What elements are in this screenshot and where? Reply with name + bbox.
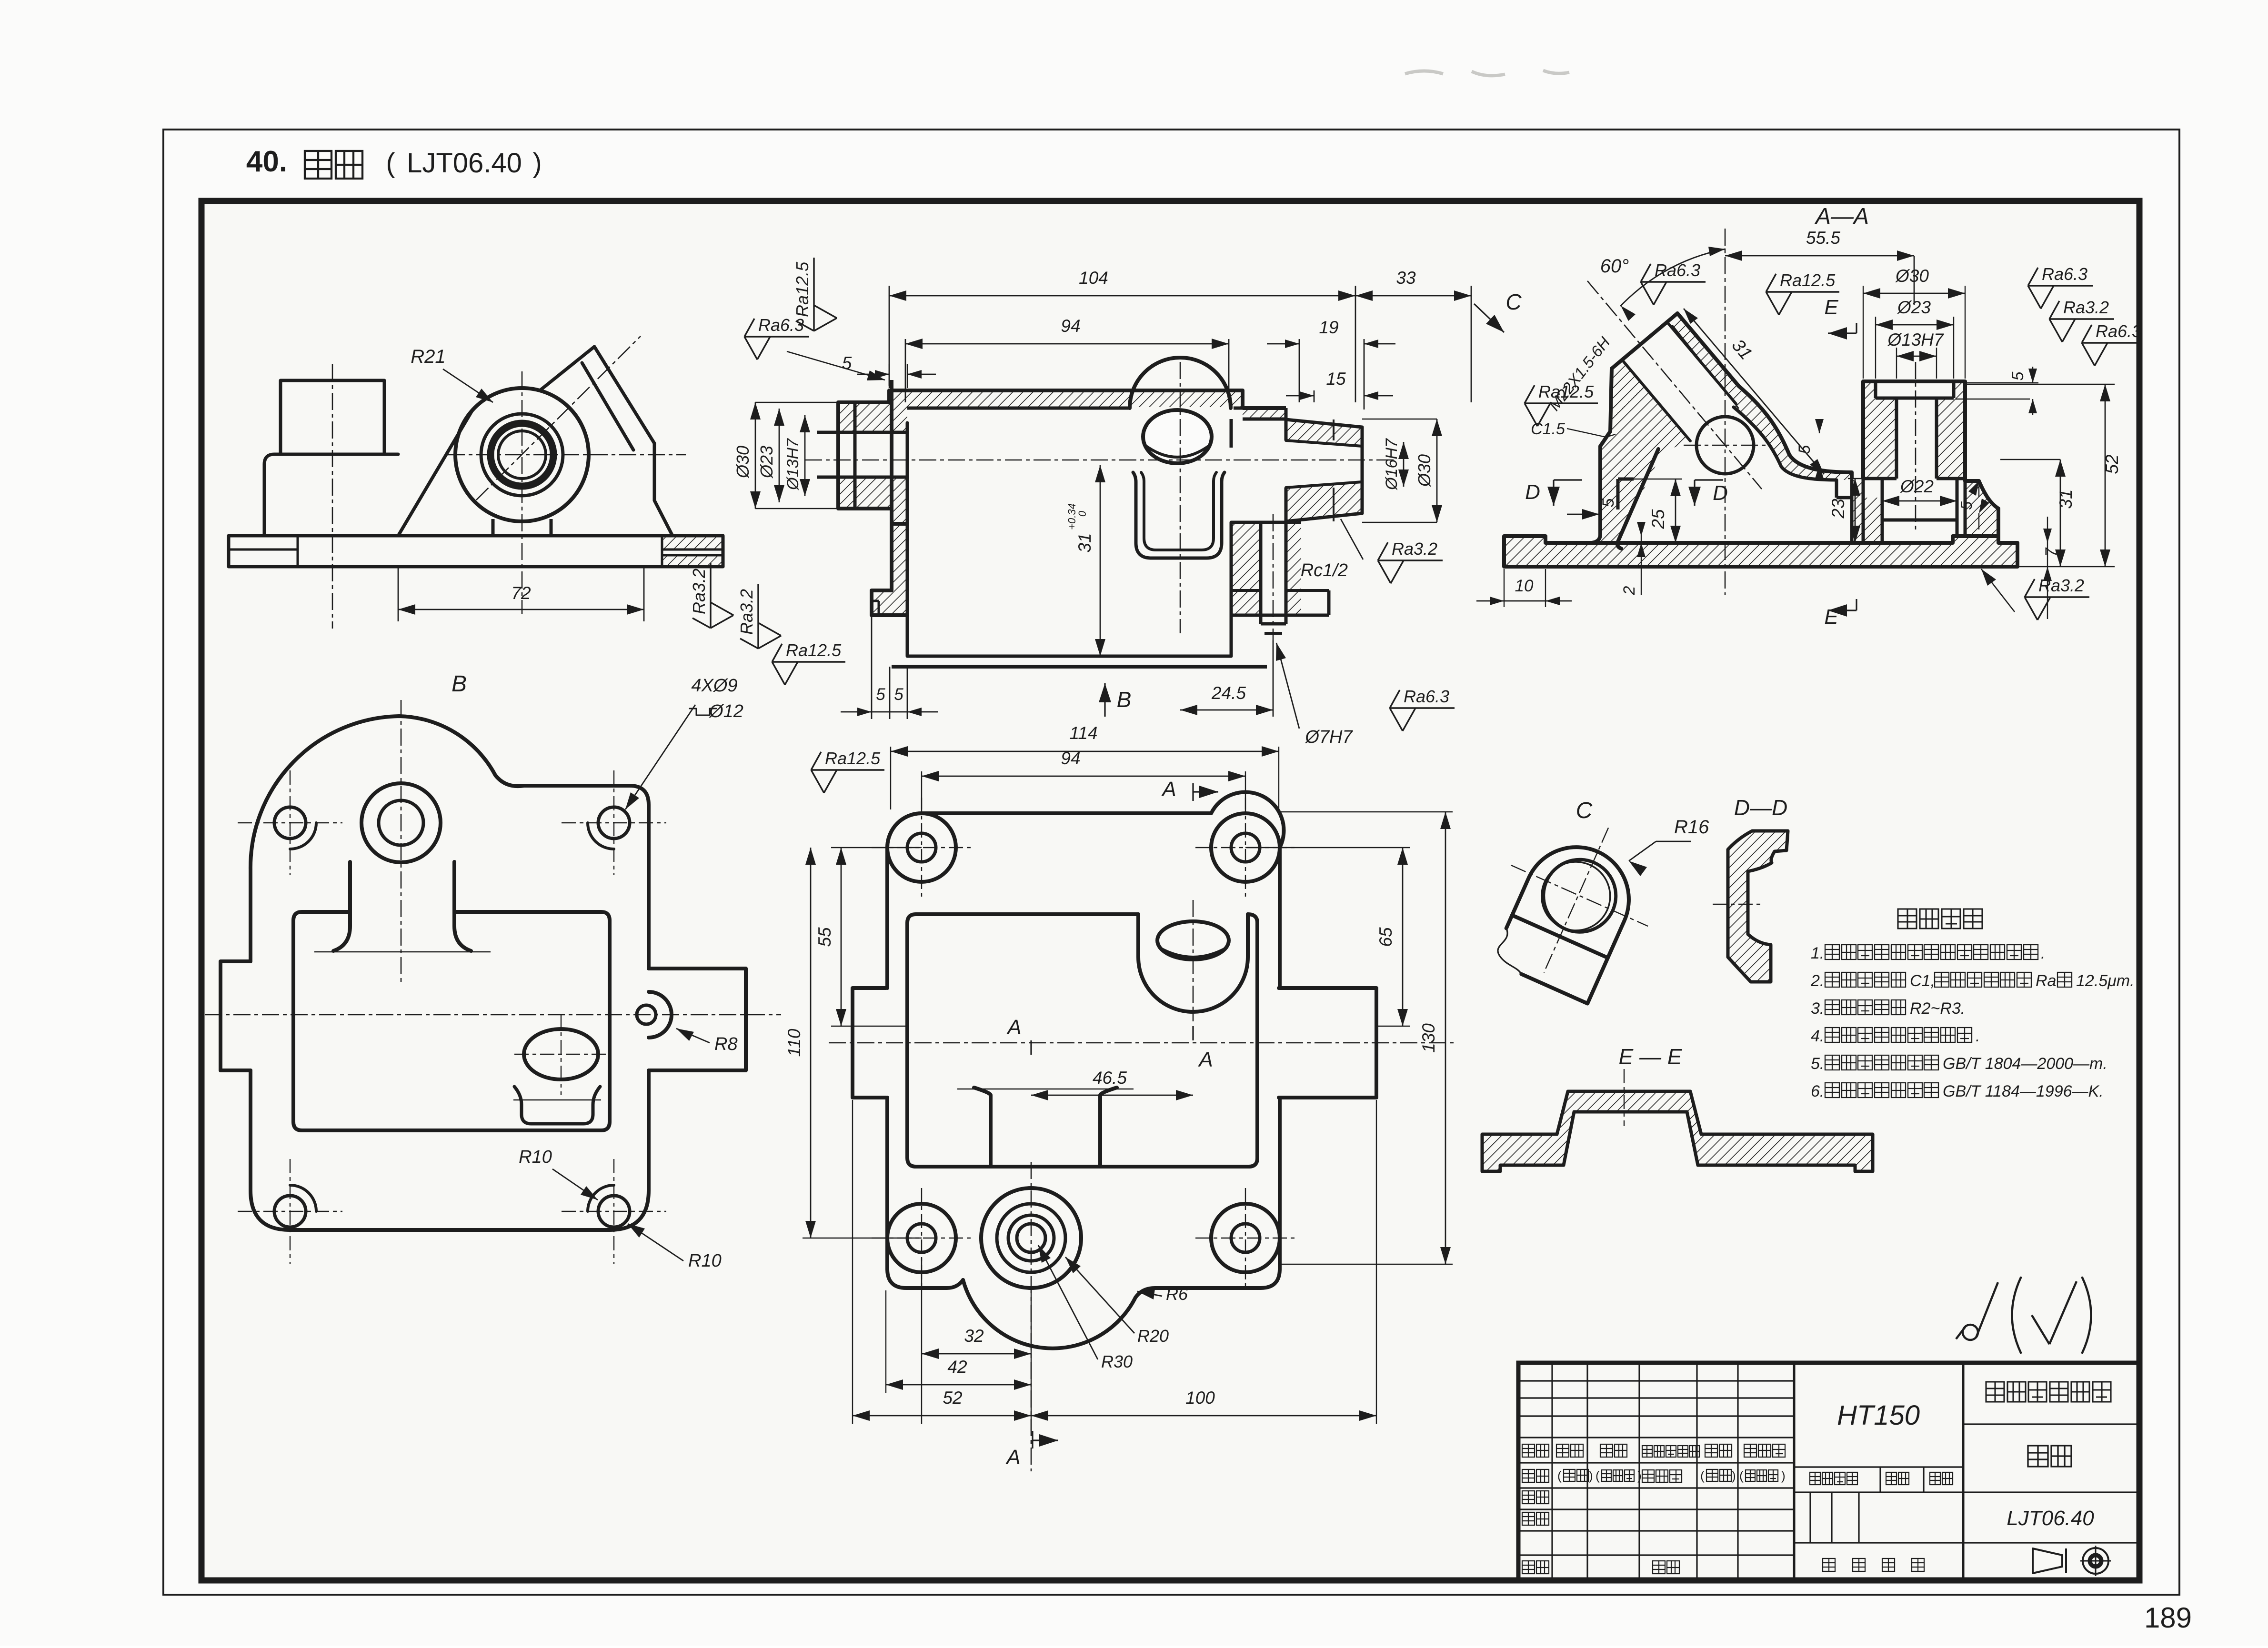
svg-text:Ø30: Ø30 [1415, 454, 1434, 487]
svg-text:Ra: Ra [2036, 972, 2056, 990]
svg-text:C: C [1576, 798, 1593, 823]
svg-text:130: 130 [1419, 1023, 1438, 1053]
svg-text:110: 110 [784, 1029, 804, 1057]
svg-text:Ø23: Ø23 [757, 446, 776, 479]
svg-text:(: ( [386, 148, 395, 179]
svg-text:94: 94 [1061, 316, 1080, 336]
svg-text:D—D: D—D [1734, 795, 1787, 820]
svg-text:3.: 3. [1811, 999, 1824, 1018]
svg-text:R16: R16 [1674, 817, 1709, 838]
svg-text:5: 5 [1796, 445, 1814, 454]
svg-text:Ø13H7: Ø13H7 [1887, 330, 1944, 350]
svg-text:Ra12.5: Ra12.5 [1780, 270, 1836, 290]
svg-text:R8: R8 [714, 1034, 738, 1054]
svg-text:25: 25 [1648, 509, 1668, 529]
svg-text:Ø23: Ø23 [1897, 298, 1931, 317]
svg-text:2.: 2. [1810, 972, 1824, 990]
svg-text:E: E [1824, 296, 1838, 319]
svg-text:(: ( [1557, 1468, 1562, 1483]
svg-text:A: A [1197, 1048, 1213, 1071]
svg-text:1.: 1. [1811, 944, 1824, 962]
svg-text:72: 72 [511, 583, 531, 603]
svg-text:4XØ9: 4XØ9 [691, 676, 737, 696]
svg-text:C: C [1505, 290, 1522, 314]
svg-text:60°: 60° [1600, 256, 1629, 277]
svg-text:R10: R10 [688, 1251, 722, 1271]
svg-text:23: 23 [1828, 499, 1848, 519]
svg-text:5: 5 [894, 685, 903, 704]
svg-text:52: 52 [943, 1388, 963, 1408]
svg-text:2: 2 [1620, 586, 1638, 595]
svg-text:Ra6.3: Ra6.3 [758, 315, 804, 335]
svg-text:31: 31 [2056, 489, 2076, 509]
svg-text:Ra6.3: Ra6.3 [1655, 260, 1700, 280]
svg-text:): ) [1732, 1468, 1736, 1483]
svg-text:10: 10 [1515, 577, 1534, 595]
svg-text:Rc1/2: Rc1/2 [1301, 560, 1348, 580]
svg-text:114: 114 [1070, 723, 1098, 743]
svg-text:42: 42 [947, 1357, 967, 1377]
svg-text:65: 65 [1376, 927, 1395, 947]
svg-text:0: 0 [1076, 510, 1088, 517]
svg-text:E — E: E — E [1619, 1044, 1683, 1069]
svg-text:55.5: 55.5 [1806, 228, 1840, 248]
svg-text:C1,: C1, [1910, 972, 1935, 990]
svg-text:R10: R10 [519, 1147, 552, 1167]
svg-text:Ra3.2: Ra3.2 [689, 569, 709, 614]
svg-text:.: . [2041, 944, 2045, 962]
svg-text:Ra3.2: Ra3.2 [737, 589, 756, 635]
svg-text:52: 52 [2102, 454, 2122, 474]
svg-text:B: B [1117, 687, 1132, 712]
svg-text:): ) [532, 148, 542, 179]
svg-text:5: 5 [1599, 498, 1617, 507]
svg-text:R21: R21 [411, 346, 445, 367]
svg-text:12.5μm.: 12.5μm. [2076, 972, 2135, 990]
svg-text:.: . [1976, 1027, 1980, 1045]
svg-text:15: 15 [1326, 369, 1346, 389]
svg-text:D: D [1525, 480, 1540, 504]
svg-text:Ø30: Ø30 [1895, 266, 1929, 286]
svg-text:5: 5 [876, 685, 885, 704]
svg-text:Ra6.3: Ra6.3 [2096, 321, 2141, 341]
svg-text:5.: 5. [1811, 1055, 1824, 1073]
svg-text:Ra12.5: Ra12.5 [1538, 382, 1594, 401]
svg-text:Ra6.3: Ra6.3 [2042, 264, 2087, 284]
svg-text:(: ( [1596, 1468, 1600, 1483]
svg-text:GB/T 1804—2000—m.: GB/T 1804—2000—m. [1943, 1055, 2107, 1073]
svg-text:5: 5 [2009, 371, 2027, 380]
svg-text:GB/T 1184—1996—K.: GB/T 1184—1996—K. [1943, 1082, 2104, 1100]
svg-text:33: 33 [1396, 268, 1416, 288]
svg-text:32: 32 [964, 1326, 984, 1346]
svg-text:Ra3.2: Ra3.2 [2063, 298, 2109, 317]
svg-text:6.: 6. [1811, 1082, 1824, 1100]
svg-text:189: 189 [2144, 1602, 2192, 1634]
svg-text:24.5: 24.5 [1211, 683, 1246, 703]
svg-text:): ) [1637, 1468, 1642, 1483]
svg-text:R20: R20 [1137, 1326, 1169, 1346]
svg-text:94: 94 [1061, 749, 1080, 768]
svg-text:Ra3.2: Ra3.2 [1392, 539, 1437, 559]
svg-text:Ø22: Ø22 [1899, 477, 1934, 496]
svg-text:HT150: HT150 [1837, 1400, 1920, 1431]
svg-text:55: 55 [815, 927, 834, 947]
svg-text:A: A [1005, 1446, 1020, 1469]
svg-text:): ) [1781, 1468, 1786, 1483]
svg-text:100: 100 [1185, 1388, 1215, 1408]
svg-text:R30: R30 [1101, 1352, 1133, 1371]
svg-text:Ra12.5: Ra12.5 [793, 261, 812, 317]
svg-text:A: A [1161, 778, 1176, 801]
svg-text:104: 104 [1079, 268, 1108, 288]
svg-text:7: 7 [2042, 547, 2060, 557]
svg-text:R6: R6 [1166, 1284, 1188, 1304]
svg-text:A—A: A—A [1814, 204, 1869, 229]
svg-text:4.: 4. [1811, 1027, 1824, 1045]
svg-text:Ra3.2: Ra3.2 [2038, 576, 2084, 595]
svg-text:(: ( [1739, 1468, 1744, 1483]
svg-text:40.: 40. [246, 145, 287, 178]
svg-text:): ) [1589, 1468, 1593, 1483]
svg-text:C1.5: C1.5 [1531, 420, 1565, 438]
svg-text:Ø16H7: Ø16H7 [1383, 438, 1401, 490]
svg-text:19: 19 [1319, 318, 1338, 337]
svg-text:Ra12.5: Ra12.5 [825, 749, 881, 768]
svg-text:Ø7H7: Ø7H7 [1304, 727, 1353, 747]
svg-text:Ra12.5: Ra12.5 [786, 640, 842, 660]
svg-text:B: B [452, 671, 467, 697]
svg-text:LJT06.40: LJT06.40 [407, 148, 522, 179]
svg-text:LJT06.40: LJT06.40 [2007, 1507, 2094, 1530]
svg-text:A: A [1006, 1016, 1021, 1039]
svg-text:Ø30: Ø30 [733, 446, 753, 479]
svg-text:R2~R3.: R2~R3. [1910, 999, 1965, 1018]
svg-text:Ø13H7: Ø13H7 [784, 438, 802, 490]
svg-text:5: 5 [1958, 501, 1975, 510]
svg-text:46.5: 46.5 [1093, 1068, 1127, 1088]
svg-text:31: 31 [1075, 533, 1094, 552]
svg-text:Ra6.3: Ra6.3 [1404, 687, 1449, 706]
svg-text:(: ( [1700, 1468, 1705, 1483]
svg-text:Ø12: Ø12 [708, 701, 743, 721]
svg-text:D: D [1713, 481, 1728, 505]
